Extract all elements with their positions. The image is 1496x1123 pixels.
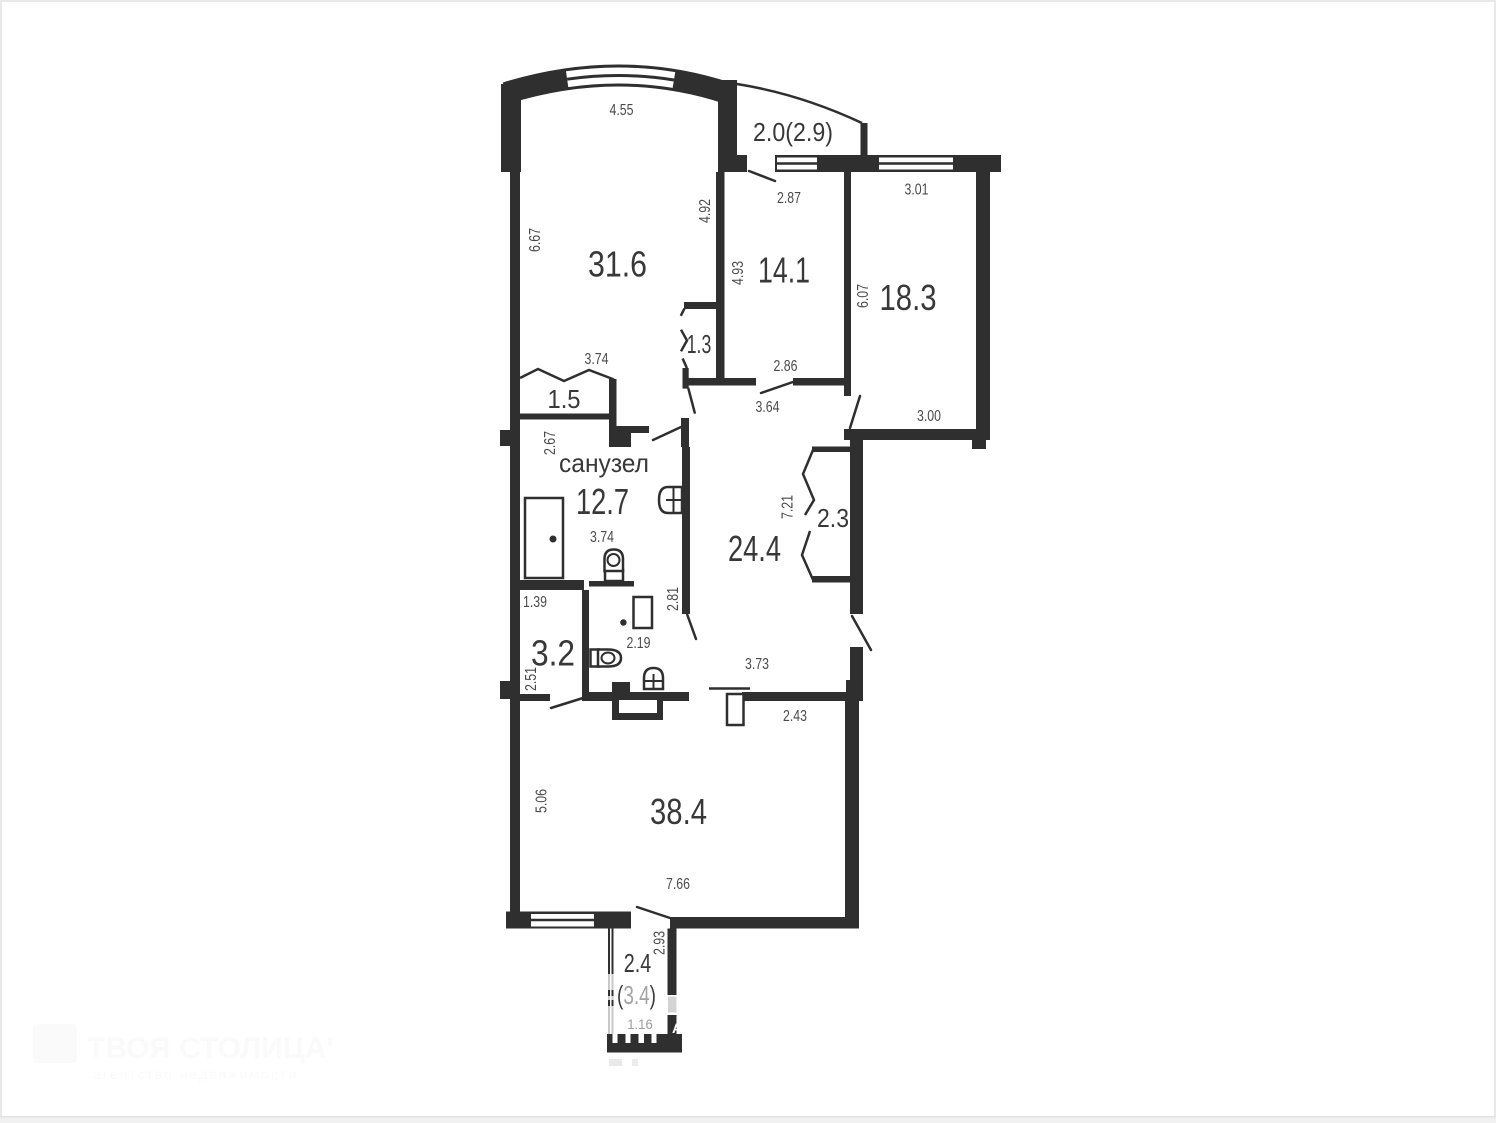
svg-text:1.3: 1.3 xyxy=(687,329,712,359)
svg-text:А: А xyxy=(672,1020,682,1036)
svg-text:1.16: 1.16 xyxy=(627,1016,653,1032)
svg-text:2.43: 2.43 xyxy=(783,708,807,725)
svg-text:38.4: 38.4 xyxy=(650,791,707,832)
svg-text:6.07: 6.07 xyxy=(855,284,872,308)
svg-text:санузел: санузел xyxy=(559,448,649,478)
svg-text:31.6: 31.6 xyxy=(588,244,647,285)
svg-text:7.66: 7.66 xyxy=(666,876,690,893)
svg-text:2.3: 2.3 xyxy=(817,503,849,533)
svg-text:3.01: 3.01 xyxy=(905,182,929,199)
svg-text:12.7: 12.7 xyxy=(576,481,629,522)
svg-text:агентство недвижимости: агентство недвижимости xyxy=(93,1066,298,1082)
svg-text:2.67: 2.67 xyxy=(542,431,559,455)
svg-text:18.3: 18.3 xyxy=(880,277,937,318)
svg-text:4.93: 4.93 xyxy=(730,261,747,285)
svg-text:2.4: 2.4 xyxy=(624,948,652,978)
svg-text:1.39: 1.39 xyxy=(523,594,547,611)
svg-text:14.1: 14.1 xyxy=(758,250,810,291)
svg-text:4.92: 4.92 xyxy=(697,199,714,223)
svg-text:3.2: 3.2 xyxy=(531,633,575,674)
svg-text:2.86: 2.86 xyxy=(774,358,798,375)
svg-text:2.19: 2.19 xyxy=(627,635,651,652)
svg-text:(3.4): (3.4) xyxy=(617,980,656,1010)
svg-text:3.73: 3.73 xyxy=(745,656,769,673)
svg-text:24.4: 24.4 xyxy=(728,528,781,569)
svg-text:3.00: 3.00 xyxy=(917,408,941,425)
svg-text:5.06: 5.06 xyxy=(534,789,551,813)
svg-text:3.64: 3.64 xyxy=(756,399,780,416)
svg-text:6.67: 6.67 xyxy=(527,228,544,252)
svg-text:1.5: 1.5 xyxy=(548,384,581,414)
svg-text:7.21: 7.21 xyxy=(780,495,797,519)
svg-text:2.93: 2.93 xyxy=(652,931,669,955)
svg-text:2.87: 2.87 xyxy=(777,190,801,207)
svg-text:3.74: 3.74 xyxy=(590,529,614,546)
svg-text:3.74: 3.74 xyxy=(585,351,609,368)
svg-text:ТВОЯ СТОЛИЦА': ТВОЯ СТОЛИЦА' xyxy=(87,1032,334,1065)
svg-text:4.55: 4.55 xyxy=(610,102,634,119)
svg-text:2.0(2.9): 2.0(2.9) xyxy=(753,117,833,147)
svg-text:2.81: 2.81 xyxy=(665,587,682,611)
